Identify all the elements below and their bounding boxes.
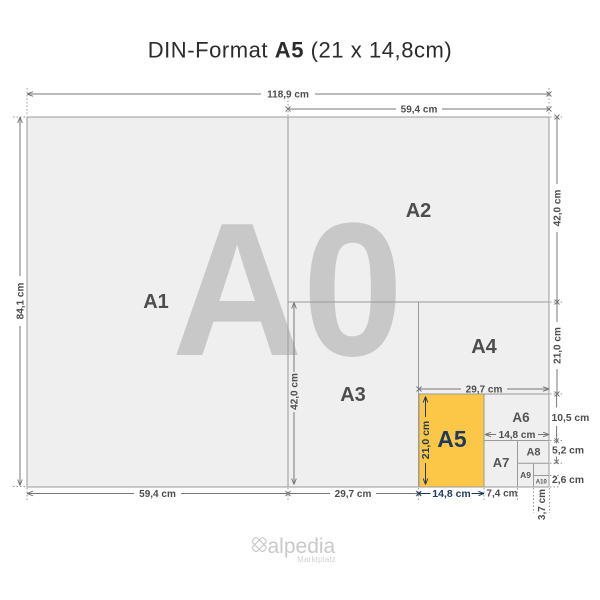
svg-text:21,0 cm: 21,0 cm [553, 327, 564, 364]
svg-text:A1: A1 [143, 291, 169, 313]
svg-text:59,4 cm: 59,4 cm [139, 489, 176, 500]
svg-text:29,7 cm: 29,7 cm [335, 489, 372, 500]
svg-text:7,4 cm: 7,4 cm [486, 489, 517, 500]
svg-text:A10: A10 [536, 480, 548, 486]
svg-text:14,8 cm: 14,8 cm [432, 488, 471, 500]
svg-text:2,6 cm: 2,6 cm [552, 475, 584, 486]
svg-text:A2: A2 [406, 200, 432, 222]
svg-text:5,2 cm: 5,2 cm [552, 446, 584, 457]
svg-text:DIN-Format A5 (21 x 14,8cm): DIN-Format A5 (21 x 14,8cm) [148, 38, 453, 63]
svg-text:21,0 cm: 21,0 cm [420, 421, 432, 460]
svg-text:A9: A9 [520, 470, 531, 480]
svg-text:42,0 cm: 42,0 cm [553, 190, 564, 227]
svg-text:A5: A5 [437, 426, 467, 452]
svg-text:A4: A4 [471, 336, 497, 358]
svg-text:42,0 cm: 42,0 cm [290, 373, 301, 410]
svg-text:3,7 cm: 3,7 cm [537, 489, 548, 520]
svg-text:A8: A8 [526, 447, 540, 459]
svg-text:59,4 cm: 59,4 cm [401, 105, 438, 116]
svg-text:84,1 cm: 84,1 cm [16, 283, 27, 320]
svg-text:29,7 cm: 29,7 cm [466, 385, 503, 396]
svg-text:A3: A3 [340, 384, 366, 406]
svg-text:10,5 cm: 10,5 cm [552, 413, 590, 424]
svg-text:A7: A7 [493, 455, 510, 470]
svg-text:118,9 cm: 118,9 cm [267, 90, 309, 101]
svg-text:A6: A6 [512, 410, 530, 425]
svg-text:14,8 cm: 14,8 cm [499, 430, 536, 441]
svg-text:Marktplatz: Marktplatz [297, 555, 336, 564]
